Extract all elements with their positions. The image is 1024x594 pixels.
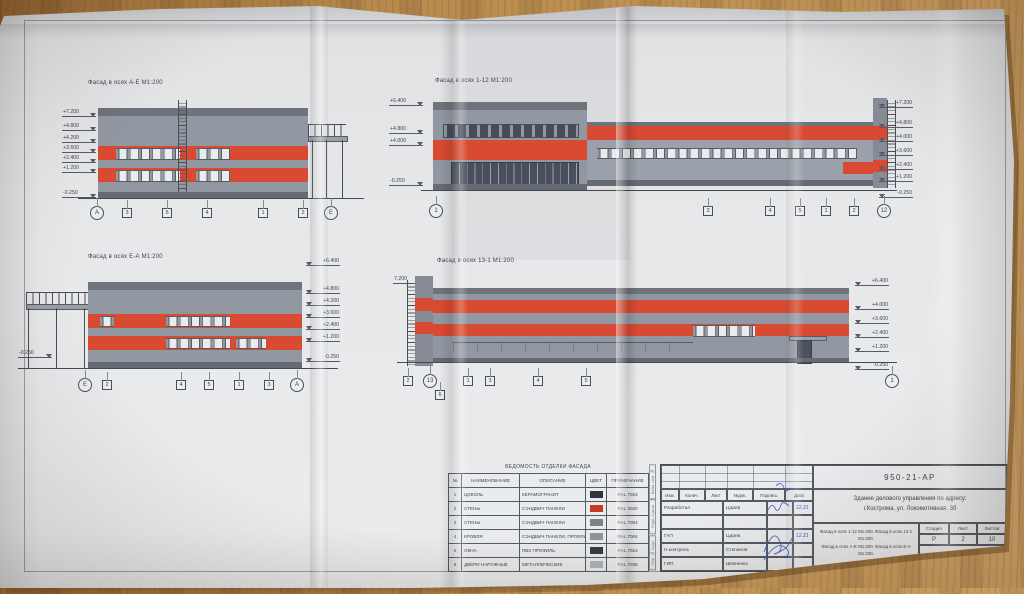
window-band xyxy=(116,148,180,160)
elevation-mark: +2.400 xyxy=(879,158,913,170)
elevation-value: +4.800 xyxy=(63,123,79,129)
window-band xyxy=(236,338,266,349)
axis-bubble: 1 xyxy=(885,374,899,388)
elevation-mark: -0.250 xyxy=(389,174,423,186)
canopy-post xyxy=(28,308,29,368)
legend-cell: СТЕНЫ xyxy=(462,516,520,530)
change-log-grid xyxy=(661,465,813,489)
legend-color-cell xyxy=(586,502,607,516)
legend-cell: 3 xyxy=(449,516,462,530)
keynote-marker: 1 xyxy=(258,208,268,218)
window-band xyxy=(693,325,755,337)
keynote-marker: 2 xyxy=(102,380,112,390)
titleblock-date: 12.21 xyxy=(793,529,813,543)
window-band xyxy=(166,338,230,349)
elevation-flag-icon xyxy=(855,306,861,310)
project-line: Здание делового управления по адресу: xyxy=(814,495,1006,505)
keynote-marker: 5 xyxy=(795,206,805,216)
elevation-flag-icon xyxy=(855,320,861,324)
legend-table: № НАИМЕНОВАНИЕ ОПИСАНИЕ ЦВЕТ ПРИМЕЧАНИЕ … xyxy=(448,473,649,572)
legend-color-cell xyxy=(586,488,607,502)
titleblock-role: ГАП xyxy=(661,529,723,543)
elevation-mark: +6.400 xyxy=(306,254,340,266)
elevation-flag-icon xyxy=(417,102,423,106)
elevation-value: -0.250 xyxy=(897,190,912,196)
side-label: Взам. инв. № xyxy=(649,464,656,499)
titleblock-date xyxy=(793,515,813,529)
legend-cell: СТЕНЫ xyxy=(462,502,520,516)
col-izm: Изм. xyxy=(661,489,679,501)
keynote-marker: 3 xyxy=(485,376,495,386)
red-stripe xyxy=(433,324,849,336)
legend-cell: RAL 7024 xyxy=(607,488,649,502)
legend-cell: RAL 7004 xyxy=(607,530,649,544)
canopy-post xyxy=(56,308,57,368)
elevation-flag-icon xyxy=(855,348,861,352)
legend-cell: RAL 3020 xyxy=(607,502,649,516)
facade-wall xyxy=(88,290,302,368)
keynote-marker: 1 xyxy=(234,380,244,390)
facade-1-12: Фасад в осях 1-12 М1:200 +6.400+4.800+4.… xyxy=(385,68,913,240)
color-swatch xyxy=(590,547,603,554)
elevation-flag-icon xyxy=(879,166,885,170)
titleblock-name: Шевченко xyxy=(723,557,767,571)
axis-row: 213134561 xyxy=(393,374,917,406)
legend-row: 4КРОВЛЯСЭНДВИЧ ПАНЕЛИ, ПРОФЛИСТRAL 7004 xyxy=(449,530,649,544)
elevation-value: +4.000 xyxy=(872,302,888,308)
facade-label: Фасад в осях Е-А М1:200 xyxy=(88,254,163,260)
roles-rows: РазработалЦарев12.21ГАПЦарев12.21Н.контр… xyxy=(661,501,813,571)
elevation-mark: +1.200 xyxy=(62,161,96,173)
legend-cell: 5 xyxy=(449,544,462,558)
elevation-mark: +4.200 xyxy=(306,294,340,306)
legend-cell: RAL 7024 xyxy=(607,544,649,558)
red-stripe xyxy=(415,298,433,311)
keynote-marker: 4 xyxy=(176,380,186,390)
elevation-value: +4.200 xyxy=(323,298,339,304)
elevation-flag-icon xyxy=(879,178,885,182)
elevation-flag-icon xyxy=(855,282,861,286)
titleblock-sig xyxy=(767,501,793,515)
facade-label: Фасад в осях А-Е М1:200 xyxy=(88,80,163,86)
elevation-mark: +4.800 xyxy=(389,122,423,134)
keynote-marker: 3 xyxy=(122,208,132,218)
elevation-mark: +4.000 xyxy=(855,298,889,310)
elevation-flag-icon xyxy=(417,182,423,186)
elevation-mark: +1.200 xyxy=(306,330,340,342)
canopy-post xyxy=(84,308,85,368)
legend-col: ОПИСАНИЕ xyxy=(520,474,586,488)
elevation-flag-icon xyxy=(90,169,96,173)
legend-cell: МЕТАЛЛИЧЕСКИЕ xyxy=(520,558,586,572)
legend-cell: КЕРАМОГРАНИТ xyxy=(520,488,586,502)
stage-label: Стадия xyxy=(919,523,949,534)
red-stripe xyxy=(433,140,587,160)
legend-body: 1ЦОКОЛЬКЕРАМОГРАНИТRAL 70242СТЕНЫСЭНДВИЧ… xyxy=(449,488,649,572)
elevation-value: -0.250 xyxy=(19,350,34,356)
keynote-marker: 2 xyxy=(849,206,859,216)
titleblock-role: ГИП xyxy=(661,557,723,571)
elevation-mark: +1.200 xyxy=(879,170,913,182)
elevation-value: +1.200 xyxy=(872,344,888,350)
axis-bubble: 13 xyxy=(423,374,437,388)
legend-cell: СЭНДВИЧ ПАНЕЛИ xyxy=(520,516,586,530)
elevation-mark: +4.000 xyxy=(879,130,913,142)
elevation-flag-icon xyxy=(90,194,96,198)
legend-col: ЦВЕТ xyxy=(586,474,607,488)
elevation-mark: +4.800 xyxy=(62,119,96,131)
canopy-slab xyxy=(26,304,90,310)
elevation-mark: +2.400 xyxy=(855,326,889,338)
titleblock-sig xyxy=(767,529,793,543)
axis-row: 13451212 xyxy=(385,204,913,232)
titleblock-role-row: Н.контрольСтепанов xyxy=(661,543,813,557)
elevation-mark: +3.600 xyxy=(855,312,889,324)
elevation-mark: +6.400 xyxy=(855,274,889,286)
stamp-side-labels: Взам. инв. №Подп. и датаИнв. № подл. xyxy=(649,464,660,570)
facade-label: Фасад в осях 1-12 М1:200 xyxy=(435,78,512,84)
elevation-value: +1.200 xyxy=(323,334,339,340)
elevation-value: -0.250 xyxy=(324,354,339,360)
elevation-flag-icon xyxy=(855,334,861,338)
elevation-mark: +4.000 xyxy=(389,134,423,146)
facade-13-1: Фасад в осях 13-1 М1:200 7.200 +6.400+4.… xyxy=(393,246,917,406)
elevation-mark: +1.200 xyxy=(855,340,889,352)
window-band xyxy=(597,148,857,159)
col-list: Лист xyxy=(705,489,727,501)
project-line: г.Кострома, ул. Локомотивная, 3б xyxy=(814,505,1006,515)
legend-col: ПРИМЕЧАНИЕ xyxy=(607,474,649,488)
elevation-flag-icon xyxy=(306,358,312,362)
legend-color-cell xyxy=(586,558,607,572)
project-name: Здание делового управления по адресу: г.… xyxy=(813,489,1007,523)
keynote-marker: 1 xyxy=(463,376,473,386)
stage-grid: Стадия Лист Листов Р 2 10 xyxy=(919,523,1007,545)
document-number: 950-21-АР xyxy=(813,465,1007,489)
axis-bubble: А xyxy=(90,206,104,220)
ground-line xyxy=(421,190,897,191)
elevation-value: +7.200 xyxy=(63,109,79,115)
elevation-value: +1.200 xyxy=(63,165,79,171)
window-band xyxy=(166,316,230,327)
titleblock-name: Степанов xyxy=(723,543,767,557)
red-stripe xyxy=(843,162,873,174)
titleblock-date: 12.21 xyxy=(793,501,813,515)
keynote-marker: 3 xyxy=(703,206,713,216)
elevation-flag-icon xyxy=(879,152,885,156)
legend-row: 2СТЕНЫСЭНДВИЧ ПАНЕЛИRAL 3020 xyxy=(449,502,649,516)
sheet-label: Лист xyxy=(949,523,977,534)
titleblock-name xyxy=(723,515,767,529)
photo-of-architectural-drawing: { "facades": [ { "label": "Фасад в осях … xyxy=(0,0,1024,588)
elevation-flag-icon xyxy=(417,142,423,146)
elevation-value: +4.800 xyxy=(896,120,912,126)
side-label: Инв. № подл. xyxy=(649,535,656,570)
ground-line xyxy=(78,198,364,199)
col-podpis: Подпись xyxy=(753,489,785,501)
elevation-mark: -0.250 xyxy=(306,350,340,362)
elevation-flag-icon xyxy=(417,130,423,134)
legend-cell: 6 xyxy=(449,558,462,572)
roof-cornice xyxy=(98,108,308,116)
red-stripe xyxy=(433,300,849,313)
window-band xyxy=(443,124,579,138)
legend-color-cell xyxy=(586,516,607,530)
elevation-value: -0.250 xyxy=(63,190,78,196)
roof-cornice xyxy=(433,102,587,110)
elevation-value: +1.200 xyxy=(896,174,912,180)
titleblock-role: Разработал xyxy=(661,501,723,515)
facade-label: Фасад в осях 13-1 М1:200 xyxy=(437,258,514,264)
elevation-mark: +6.400 xyxy=(389,94,423,106)
titleblock-role-row: РазработалЦарев12.21 xyxy=(661,501,813,515)
elevation-value: +4.800 xyxy=(390,126,406,132)
titleblock-sig xyxy=(767,515,793,529)
legend-row: 1ЦОКОЛЬКЕРАМОГРАНИТRAL 7024 xyxy=(449,488,649,502)
elevation-mark: +7.200 xyxy=(879,96,913,108)
axis-bubble: 1 xyxy=(429,204,443,218)
legend-title: ВЕДОМОСТЬ ОТДЕЛКИ ФАСАДА xyxy=(448,464,648,470)
elevation-value: +3.600 xyxy=(896,148,912,154)
titleblock-role: Н.контроль xyxy=(661,543,723,557)
canopy-post xyxy=(312,140,313,198)
window-band xyxy=(196,148,230,160)
elevation-mark: +2.400 xyxy=(306,318,340,330)
elevation-value: +4.800 xyxy=(323,286,339,292)
legend-col: НАИМЕНОВАНИЕ xyxy=(462,474,520,488)
legend-color-cell xyxy=(586,530,607,544)
stage-value: Р xyxy=(919,534,949,545)
elevation-mark: +3.600 xyxy=(306,306,340,318)
elevation-value: +6.400 xyxy=(323,258,339,264)
sheets-label: Листов xyxy=(977,523,1007,534)
keynote-marker: 2 xyxy=(403,376,413,386)
elevation-value: +3.600 xyxy=(872,316,888,322)
elevation-mark: -0.250 xyxy=(18,346,52,358)
legend-cell: СЭНДВИЧ ПАНЕЛИ xyxy=(520,502,586,516)
legend-row: 6ДВЕРИ НАРУЖНЫЕМЕТАЛЛИЧЕСКИЕRAL 7035 xyxy=(449,558,649,572)
legend-header-row: № НАИМЕНОВАНИЕ ОПИСАНИЕ ЦВЕТ ПРИМЕЧАНИЕ xyxy=(449,474,649,488)
col-kolich: Колич. xyxy=(679,489,705,501)
ladder xyxy=(178,100,187,194)
elevation-value: +7.200 xyxy=(896,100,912,106)
ground-line xyxy=(18,368,338,369)
elevation-mark: +3.600 xyxy=(879,144,913,156)
titleblock-role-row: ГАПЦарев12.21 xyxy=(661,529,813,543)
legend-cell: ОКНА xyxy=(462,544,520,558)
plinth xyxy=(587,180,873,186)
red-stripe xyxy=(587,126,873,140)
keynote-marker: 4 xyxy=(202,208,212,218)
color-swatch xyxy=(590,491,603,498)
legend-cell: КРОВЛЯ xyxy=(462,530,520,544)
legend-cell: RAL 7004 xyxy=(607,516,649,530)
keynote-marker: 2 xyxy=(298,208,308,218)
sheet-value: 2 xyxy=(949,534,977,545)
legend-cell: ПВХ ПРОФИЛЬ xyxy=(520,544,586,558)
elevation-flag-icon xyxy=(306,290,312,294)
elevation-flag-icon xyxy=(306,326,312,330)
titleblock-name: Царев xyxy=(723,529,767,543)
legend-row: 5ОКНАПВХ ПРОФИЛЬRAL 7024 xyxy=(449,544,649,558)
titleblock-header-row: Изм. Колич. Лист №док. Подпись Дата xyxy=(661,489,813,501)
drawing-sheet: Фасад в осях А-Е М1:200 +7.200+4.800+4.2… xyxy=(0,0,1024,588)
color-swatch xyxy=(590,561,603,568)
keynote-marker: 5 xyxy=(162,208,172,218)
window-band xyxy=(116,170,180,182)
col-ndok: №док. xyxy=(727,489,753,501)
keynote-marker: 6 xyxy=(435,390,445,400)
facade-e-a: Фасад в осях Е-А М1:200 -0.250 +6.400+4.… xyxy=(18,246,354,406)
legend-cell: RAL 7035 xyxy=(607,558,649,572)
elevation-flag-icon xyxy=(879,124,885,128)
red-stripe xyxy=(415,322,433,334)
elevation-flag-icon xyxy=(855,366,861,370)
elevation-value: +6.400 xyxy=(390,98,406,104)
elevation-flag-icon xyxy=(90,127,96,131)
titleblock-role xyxy=(661,515,723,529)
legend-cell: 2 xyxy=(449,502,462,516)
elevation-mark: +4.800 xyxy=(306,282,340,294)
titleblock-sig xyxy=(767,543,793,557)
axis-bubble: Е xyxy=(324,206,338,220)
elevation-flag-icon xyxy=(879,138,885,142)
col-data: Дата xyxy=(785,489,813,501)
titleblock-date xyxy=(793,543,813,557)
ground-line xyxy=(397,362,897,363)
window-band xyxy=(100,316,114,327)
elevation-value: +4.000 xyxy=(390,138,406,144)
axis-bubble: Е xyxy=(78,378,92,392)
elevation-flag-icon xyxy=(306,338,312,342)
window-band xyxy=(196,170,230,182)
legend-cell: ЦОКОЛЬ xyxy=(462,488,520,502)
axis-bubble: 12 xyxy=(877,204,891,218)
titleblock-role-row xyxy=(661,515,813,529)
color-swatch xyxy=(590,505,603,512)
elevation-value: -0.250 xyxy=(390,178,405,184)
elevation-flag-icon xyxy=(879,104,885,108)
elevation-flag-icon xyxy=(306,314,312,318)
elevation-mark: -0.250 xyxy=(855,358,889,370)
color-swatch xyxy=(590,533,603,540)
elevation-flag-icon xyxy=(306,302,312,306)
elevation-value: +6.400 xyxy=(872,278,888,284)
elevation-value: +2.400 xyxy=(323,322,339,328)
legend-cell: 4 xyxy=(449,530,462,544)
keynote-marker: 1 xyxy=(821,206,831,216)
legend-row: 3СТЕНЫСЭНДВИЧ ПАНЕЛИRAL 7004 xyxy=(449,516,649,530)
elevation-value: +4.000 xyxy=(896,134,912,140)
keynote-marker: 4 xyxy=(765,206,775,216)
elevation-value: +2.400 xyxy=(896,162,912,168)
axis-row: Е24513А xyxy=(18,378,354,406)
ramp-railing xyxy=(453,342,693,351)
elevation-value: +2.400 xyxy=(872,330,888,336)
paper-crease xyxy=(0,24,1024,40)
elevation-mark: +7.200 xyxy=(62,105,96,117)
legend-col: № xyxy=(449,474,462,488)
titleblock-name: Царев xyxy=(723,501,767,515)
finish-legend: ВЕДОМОСТЬ ОТДЕЛКИ ФАСАДА № НАИМЕНОВАНИЕ … xyxy=(448,464,648,572)
sheets-value: 10 xyxy=(977,534,1007,545)
color-swatch xyxy=(590,519,603,526)
sheet-title-line: Фасад в осях 1-12 М1:200. Фасад в осях 1… xyxy=(817,528,915,543)
stair-tower xyxy=(415,276,433,366)
roof-cornice xyxy=(88,282,302,290)
keynote-marker: 5 xyxy=(581,376,591,386)
canopy-post xyxy=(326,140,327,198)
axis-row: А35412Е xyxy=(60,206,382,234)
keynote-marker: 3 xyxy=(264,380,274,390)
legend-cell: СЭНДВИЧ ПАНЕЛИ, ПРОФЛИСТ xyxy=(520,530,586,544)
axis-bubble: А xyxy=(290,378,304,392)
canopy-post xyxy=(342,140,343,198)
sheet-title-line: Фасад в осях А-Е М1:200. Фасад в осях Е-… xyxy=(817,543,915,558)
keynote-marker: 5 xyxy=(204,380,214,390)
elevation-flag-icon xyxy=(46,354,52,358)
legend-color-cell xyxy=(586,544,607,558)
elevation-mark: -0.250 xyxy=(62,186,96,198)
elevation-mark: +4.800 xyxy=(879,116,913,128)
keynote-marker: 4 xyxy=(533,376,543,386)
elevation-value: -0.250 xyxy=(873,362,888,368)
elevation-flag-icon xyxy=(90,113,96,117)
elevation-value: +3.600 xyxy=(323,310,339,316)
legend-cell: 1 xyxy=(449,488,462,502)
side-label: Подп. и дата xyxy=(649,499,656,534)
elevation-flag-icon xyxy=(306,262,312,266)
legend-cell: ДВЕРИ НАРУЖНЫЕ xyxy=(462,558,520,572)
facade-a-e: Фасад в осях А-Е М1:200 +7.200+4.800+4.2… xyxy=(60,72,382,240)
elevation-value: 7.200 xyxy=(394,276,407,282)
